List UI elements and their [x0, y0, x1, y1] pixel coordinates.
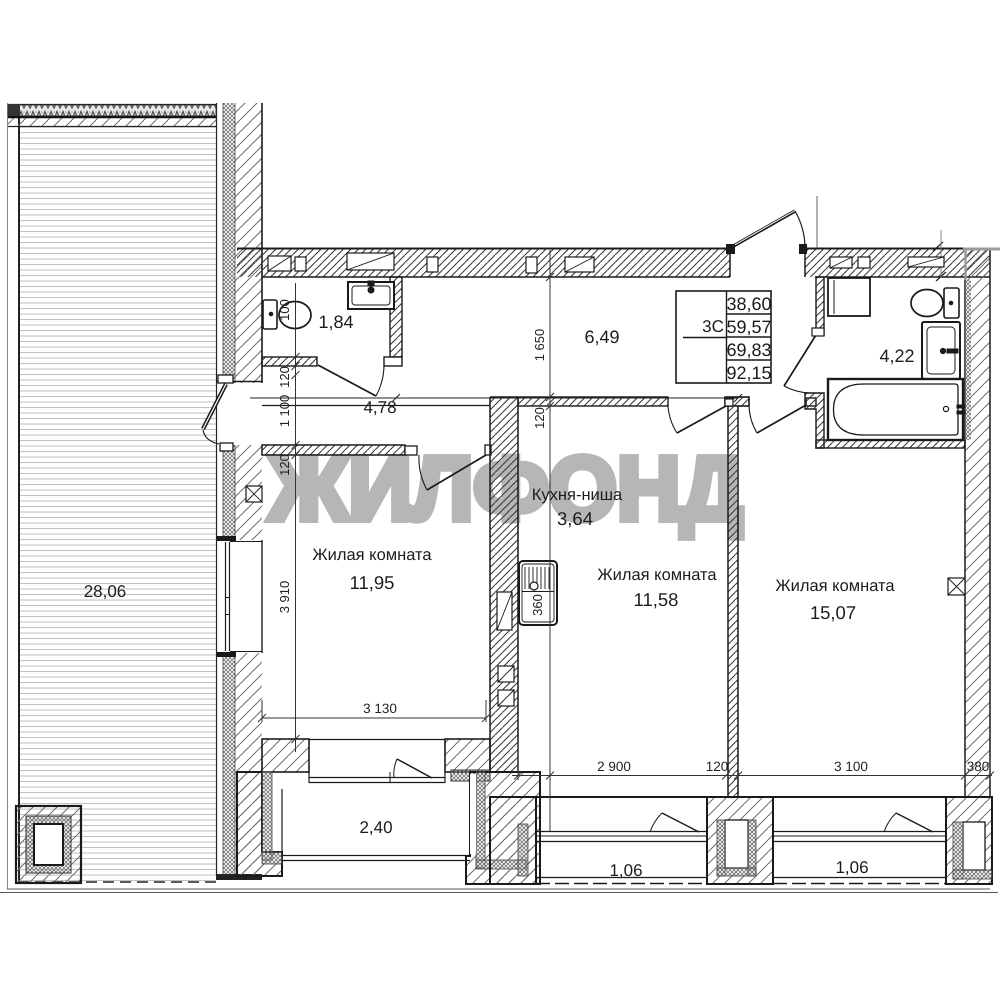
svg-text:1 650: 1 650	[532, 329, 547, 362]
svg-text:4,78: 4,78	[363, 398, 396, 417]
svg-text:2,40: 2,40	[359, 818, 392, 837]
svg-text:3 100: 3 100	[834, 759, 868, 774]
svg-text:59,57: 59,57	[726, 317, 771, 337]
svg-text:4,22: 4,22	[879, 346, 914, 366]
svg-text:120: 120	[277, 454, 292, 476]
svg-text:100: 100	[277, 299, 292, 321]
svg-text:Кухня-ниша: Кухня-ниша	[532, 486, 623, 504]
svg-text:92,15: 92,15	[726, 363, 771, 383]
svg-text:380: 380	[967, 759, 990, 774]
svg-text:360: 360	[530, 594, 545, 616]
svg-text:3С: 3С	[702, 317, 724, 336]
svg-text:1,06: 1,06	[609, 861, 642, 880]
svg-text:6,49: 6,49	[584, 327, 619, 347]
svg-text:1,06: 1,06	[835, 858, 868, 877]
svg-text:120: 120	[706, 759, 729, 774]
svg-text:2 900: 2 900	[597, 759, 631, 774]
svg-text:3,64: 3,64	[557, 508, 593, 529]
svg-text:15,07: 15,07	[810, 602, 856, 623]
svg-text:Жилая комната: Жилая комната	[775, 577, 895, 595]
svg-text:1 100: 1 100	[277, 395, 292, 428]
svg-text:38,60: 38,60	[726, 294, 771, 314]
svg-text:11,58: 11,58	[634, 589, 679, 610]
svg-text:28,06: 28,06	[84, 582, 127, 601]
svg-text:69,83: 69,83	[726, 340, 771, 360]
svg-text:11,95: 11,95	[350, 572, 395, 593]
svg-text:3 910: 3 910	[277, 581, 292, 614]
svg-text:1,84: 1,84	[318, 312, 353, 332]
svg-text:3 130: 3 130	[363, 701, 397, 716]
svg-text:Жилая комната: Жилая комната	[312, 546, 432, 564]
svg-text:120: 120	[532, 407, 547, 429]
svg-text:120: 120	[277, 366, 292, 388]
svg-text:Жилая комната: Жилая комната	[597, 566, 717, 584]
